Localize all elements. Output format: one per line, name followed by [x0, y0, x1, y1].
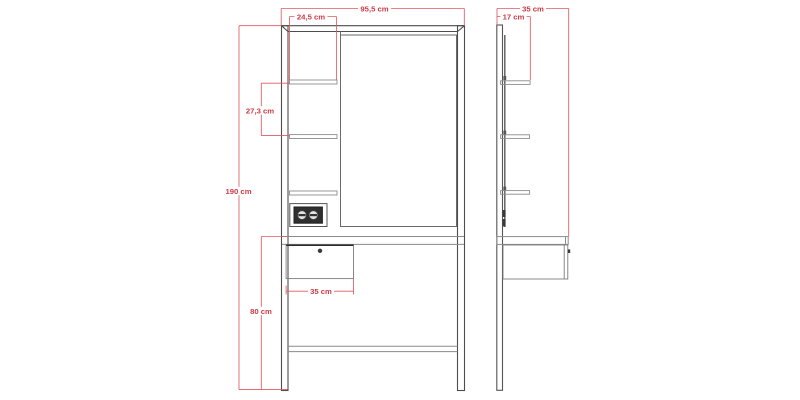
svg-text:95,5 cm: 95,5 cm — [360, 4, 388, 13]
svg-text:190 cm: 190 cm — [225, 187, 251, 196]
svg-text:27,3 cm: 27,3 cm — [246, 106, 274, 115]
svg-text:80 cm: 80 cm — [250, 307, 272, 316]
svg-text:35 cm: 35 cm — [522, 4, 544, 13]
svg-text:35 cm: 35 cm — [310, 287, 332, 296]
svg-text:17 cm: 17 cm — [503, 12, 525, 21]
svg-text:24,5 cm: 24,5 cm — [297, 12, 325, 21]
